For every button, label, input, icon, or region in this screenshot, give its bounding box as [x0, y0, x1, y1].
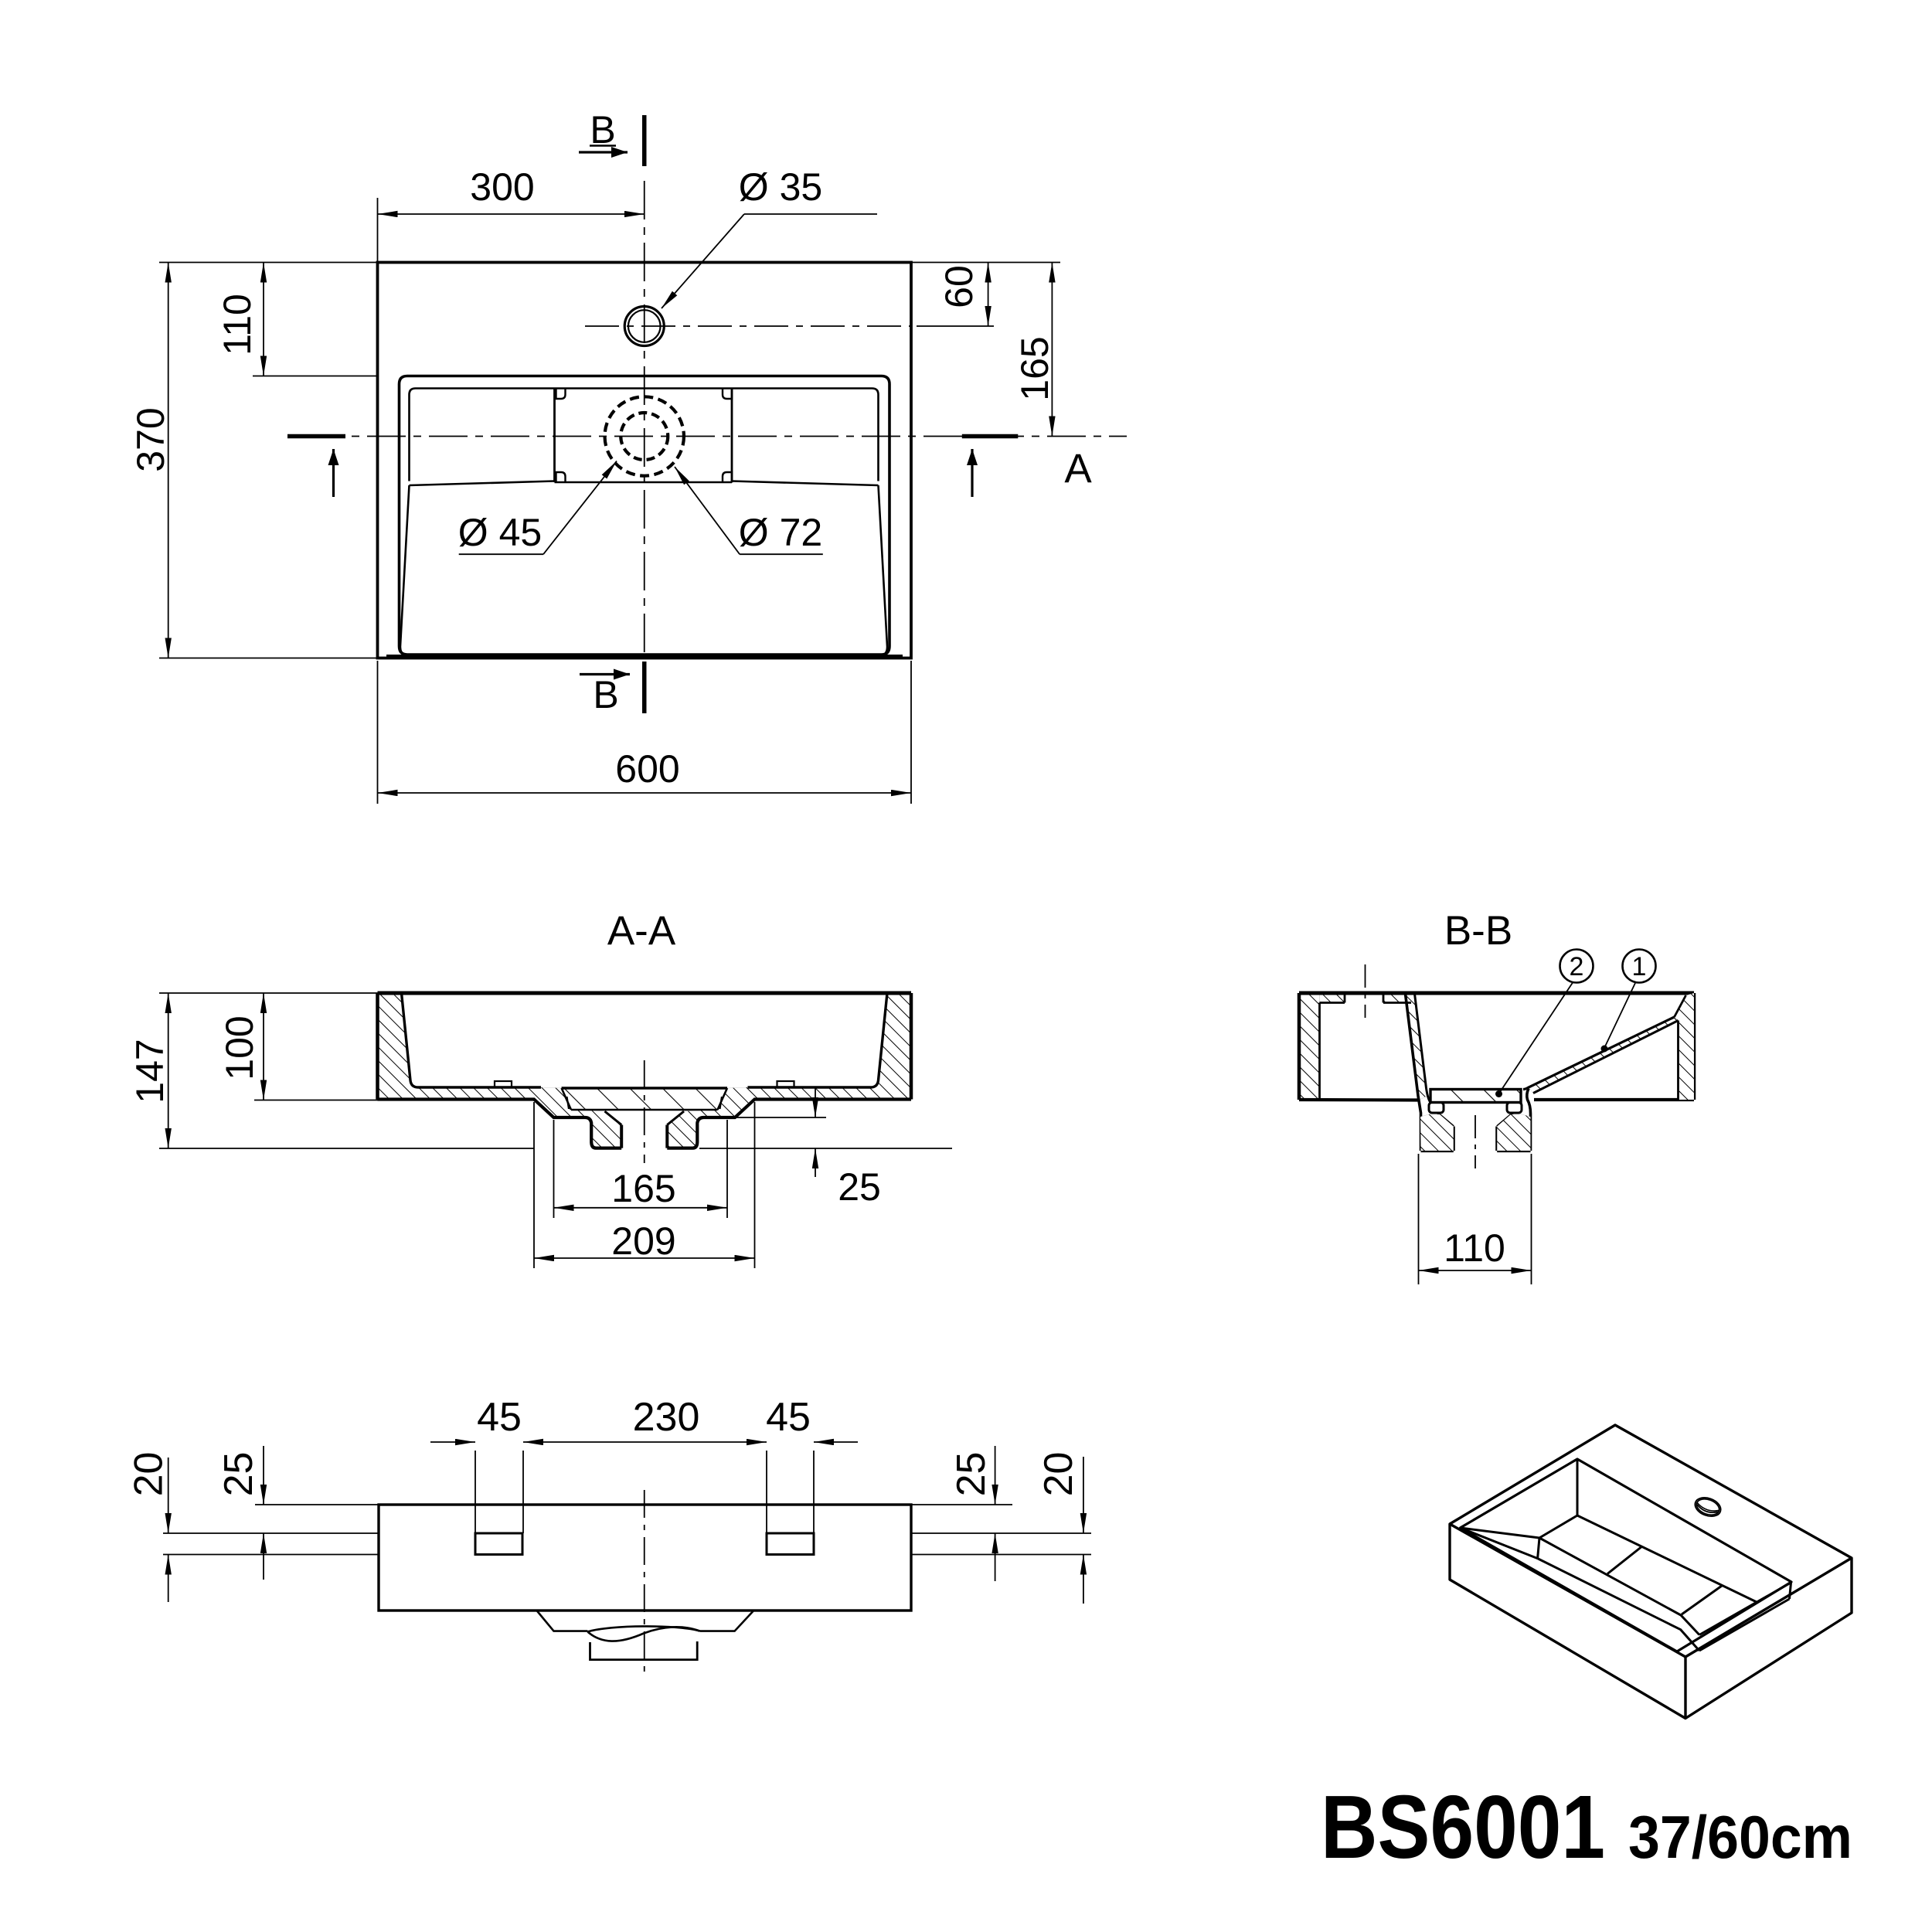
svg-text:BS6001: BS6001: [1321, 1777, 1605, 1877]
svg-text:165: 165: [611, 1167, 675, 1210]
svg-text:370: 370: [129, 407, 172, 471]
svg-text:25: 25: [838, 1165, 881, 1209]
svg-text:45: 45: [477, 1395, 522, 1440]
svg-text:209: 209: [611, 1219, 675, 1263]
svg-text:B-B: B-B: [1444, 908, 1512, 954]
svg-text:230: 230: [633, 1395, 700, 1440]
svg-text:37/60cm: 37/60cm: [1628, 1803, 1852, 1871]
svg-text:25: 25: [949, 1452, 994, 1497]
svg-text:25: 25: [216, 1452, 261, 1497]
svg-text:165: 165: [1013, 336, 1056, 400]
svg-text:45: 45: [766, 1395, 811, 1440]
svg-text:20: 20: [1036, 1452, 1081, 1497]
svg-text:110: 110: [216, 294, 259, 355]
svg-text:100: 100: [218, 1015, 261, 1080]
svg-text:147: 147: [128, 1039, 172, 1103]
svg-text:2: 2: [1570, 952, 1584, 981]
svg-text:Ø 35: Ø 35: [739, 165, 822, 209]
svg-text:20: 20: [127, 1452, 172, 1497]
svg-text:Ø 72: Ø 72: [739, 511, 822, 554]
svg-text:A: A: [1064, 446, 1092, 492]
svg-text:A-A: A-A: [607, 908, 676, 954]
svg-text:300: 300: [470, 165, 534, 209]
svg-text:1: 1: [1632, 952, 1647, 981]
svg-text:B: B: [593, 673, 618, 716]
svg-text:Ø 45: Ø 45: [458, 511, 542, 554]
svg-text:110: 110: [1444, 1226, 1505, 1270]
svg-text:60: 60: [937, 265, 981, 308]
svg-text:600: 600: [615, 747, 679, 791]
